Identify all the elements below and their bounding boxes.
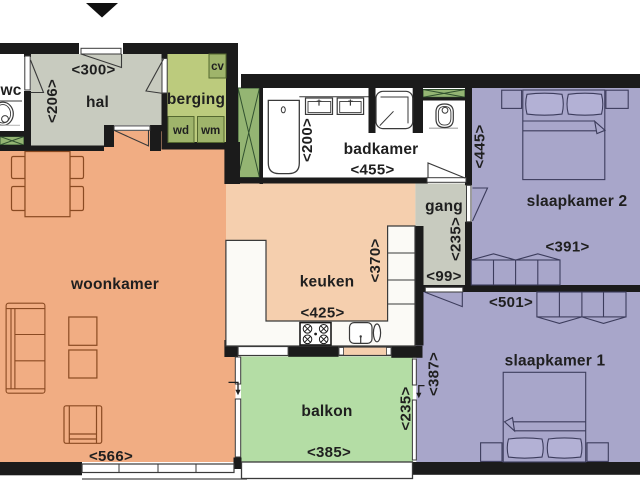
svg-text:wc: wc [0, 82, 22, 99]
svg-text:<566>: <566> [89, 448, 133, 465]
svg-text:berging: berging [167, 91, 225, 108]
svg-text:balkon: balkon [301, 403, 352, 420]
svg-text:badkamer: badkamer [344, 141, 419, 158]
svg-text:<425>: <425> [300, 305, 344, 322]
svg-text:<200>: <200> [299, 118, 316, 162]
svg-text:<235>: <235> [398, 386, 415, 430]
svg-text:wd: wd [172, 125, 189, 137]
svg-text:<99>: <99> [426, 268, 461, 285]
svg-text:<206>: <206> [44, 79, 61, 123]
svg-text:wm: wm [200, 125, 220, 137]
svg-text:<370>: <370> [367, 238, 384, 282]
svg-text:<300>: <300> [71, 62, 115, 79]
svg-text:slaapkamer 1: slaapkamer 1 [505, 353, 606, 370]
svg-text:<391>: <391> [545, 239, 589, 256]
svg-text:<235>: <235> [448, 217, 465, 261]
svg-text:<455>: <455> [350, 162, 394, 179]
svg-text:slaapkamer 2: slaapkamer 2 [527, 193, 628, 210]
svg-text:gang: gang [425, 198, 463, 215]
svg-text:cv: cv [211, 61, 224, 73]
svg-text:<501>: <501> [489, 294, 533, 311]
svg-text:keuken: keuken [300, 274, 355, 291]
svg-text:<387>: <387> [426, 352, 443, 396]
svg-text:woonkamer: woonkamer [70, 276, 159, 293]
svg-text:hal: hal [86, 94, 109, 111]
svg-text:<445>: <445> [472, 124, 489, 168]
svg-text:<385>: <385> [307, 444, 351, 461]
